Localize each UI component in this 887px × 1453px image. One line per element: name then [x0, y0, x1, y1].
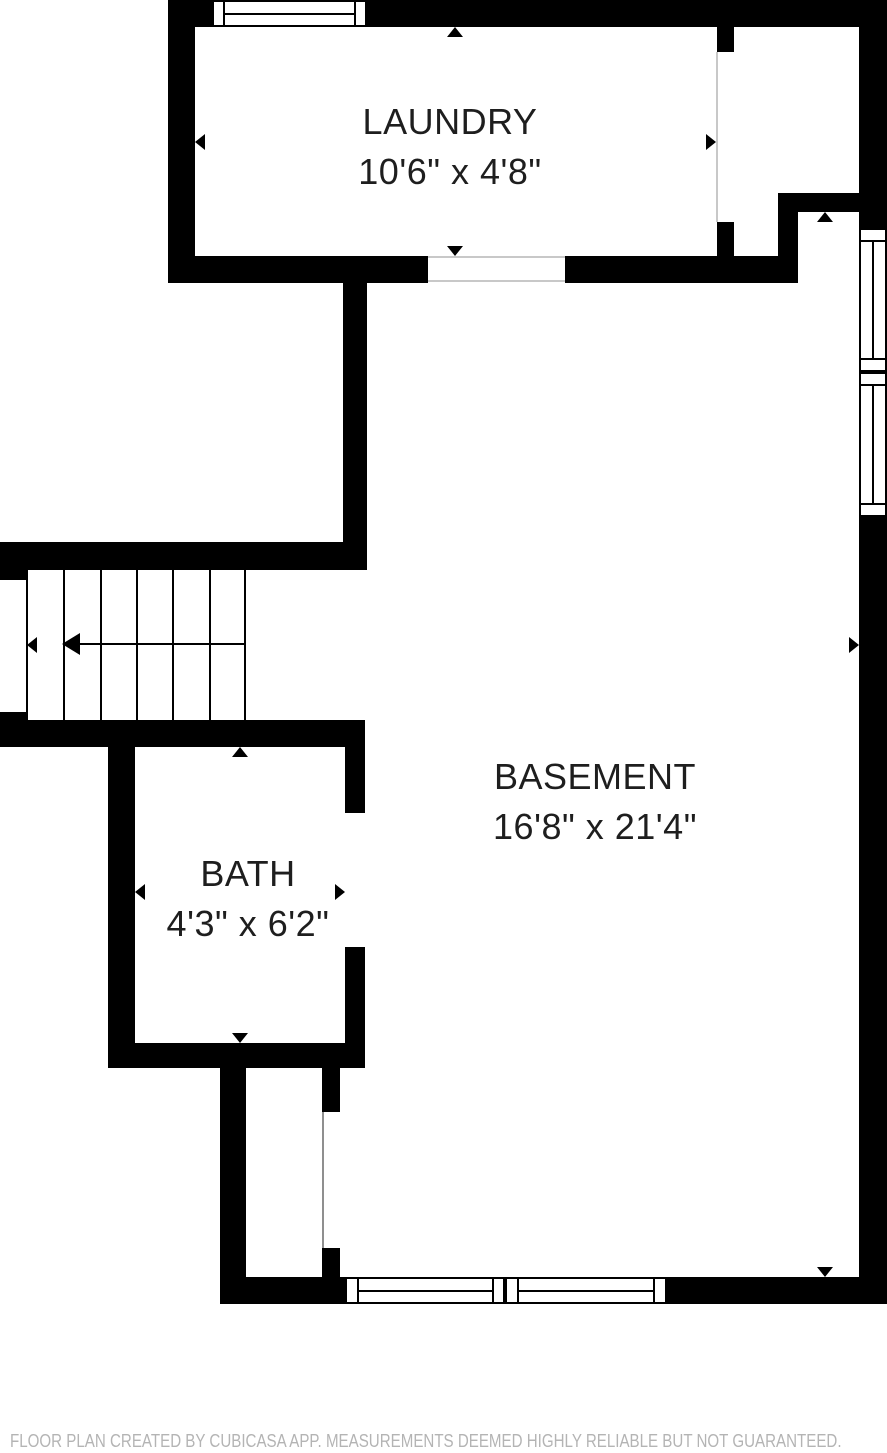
dimension-arrow-left-icon [27, 637, 37, 653]
window-frame-line [223, 13, 356, 15]
window-frame-line [517, 1290, 655, 1292]
disclaimer-text: FLOOR PLAN CREATED BY CUBICASA APP. MEAS… [10, 1431, 842, 1452]
door-threshold-line [716, 52, 718, 222]
wall [343, 256, 367, 570]
wall [859, 517, 887, 1304]
stair-tread-line [209, 570, 211, 720]
door-opening [428, 256, 565, 283]
dimension-arrow-down-icon [817, 1267, 833, 1277]
wall [322, 1063, 340, 1112]
door-threshold-line [428, 256, 565, 258]
wall [717, 222, 734, 256]
dimension-arrow-down-icon [232, 1033, 248, 1043]
room-dimensions: 16'8" x 21'4" [345, 802, 845, 852]
wall [717, 27, 734, 52]
window [212, 0, 367, 27]
room-label-laundry: LAUNDRY 10'6" x 4'8" [190, 97, 710, 197]
window [859, 228, 887, 372]
wall [0, 720, 365, 747]
room-label-bath: BATH 4'3" x 6'2" [98, 849, 398, 949]
dimension-arrow-up-icon [447, 27, 463, 37]
door-threshold-line [322, 1112, 324, 1248]
stairs-direction-arrow-icon [62, 633, 80, 655]
dimension-arrow-right-icon [849, 637, 859, 653]
stairs-direction-line [80, 643, 245, 645]
wall [220, 1063, 246, 1304]
wall [0, 542, 367, 570]
wall [0, 542, 27, 580]
stair-tread-line [100, 570, 102, 720]
room-name: BASEMENT [345, 752, 845, 802]
window-frame-line [357, 1290, 494, 1292]
room-label-basement: BASEMENT 16'8" x 21'4" [345, 752, 845, 852]
stair-tread-line [136, 570, 138, 720]
stair-tread-line [244, 570, 246, 720]
window-frame-line [872, 240, 874, 360]
window [859, 372, 887, 517]
room-name: BATH [98, 849, 398, 899]
room-dimensions: 4'3" x 6'2" [98, 899, 398, 949]
window-frame-line [872, 384, 874, 505]
room-name: LAUNDRY [190, 97, 710, 147]
floor-plan-canvas: LAUNDRY 10'6" x 4'8" BASEMENT 16'8" x 21… [0, 0, 887, 1453]
wall [859, 0, 887, 228]
dimension-arrow-up-icon [232, 747, 248, 757]
room-dimensions: 10'6" x 4'8" [190, 147, 710, 197]
door-threshold-line [428, 280, 565, 282]
stair-tread-line [172, 570, 174, 720]
dimension-arrow-down-icon [447, 246, 463, 256]
window [345, 1277, 505, 1304]
window [505, 1277, 667, 1304]
wall [778, 193, 798, 256]
dimension-arrow-up-icon [817, 212, 833, 222]
